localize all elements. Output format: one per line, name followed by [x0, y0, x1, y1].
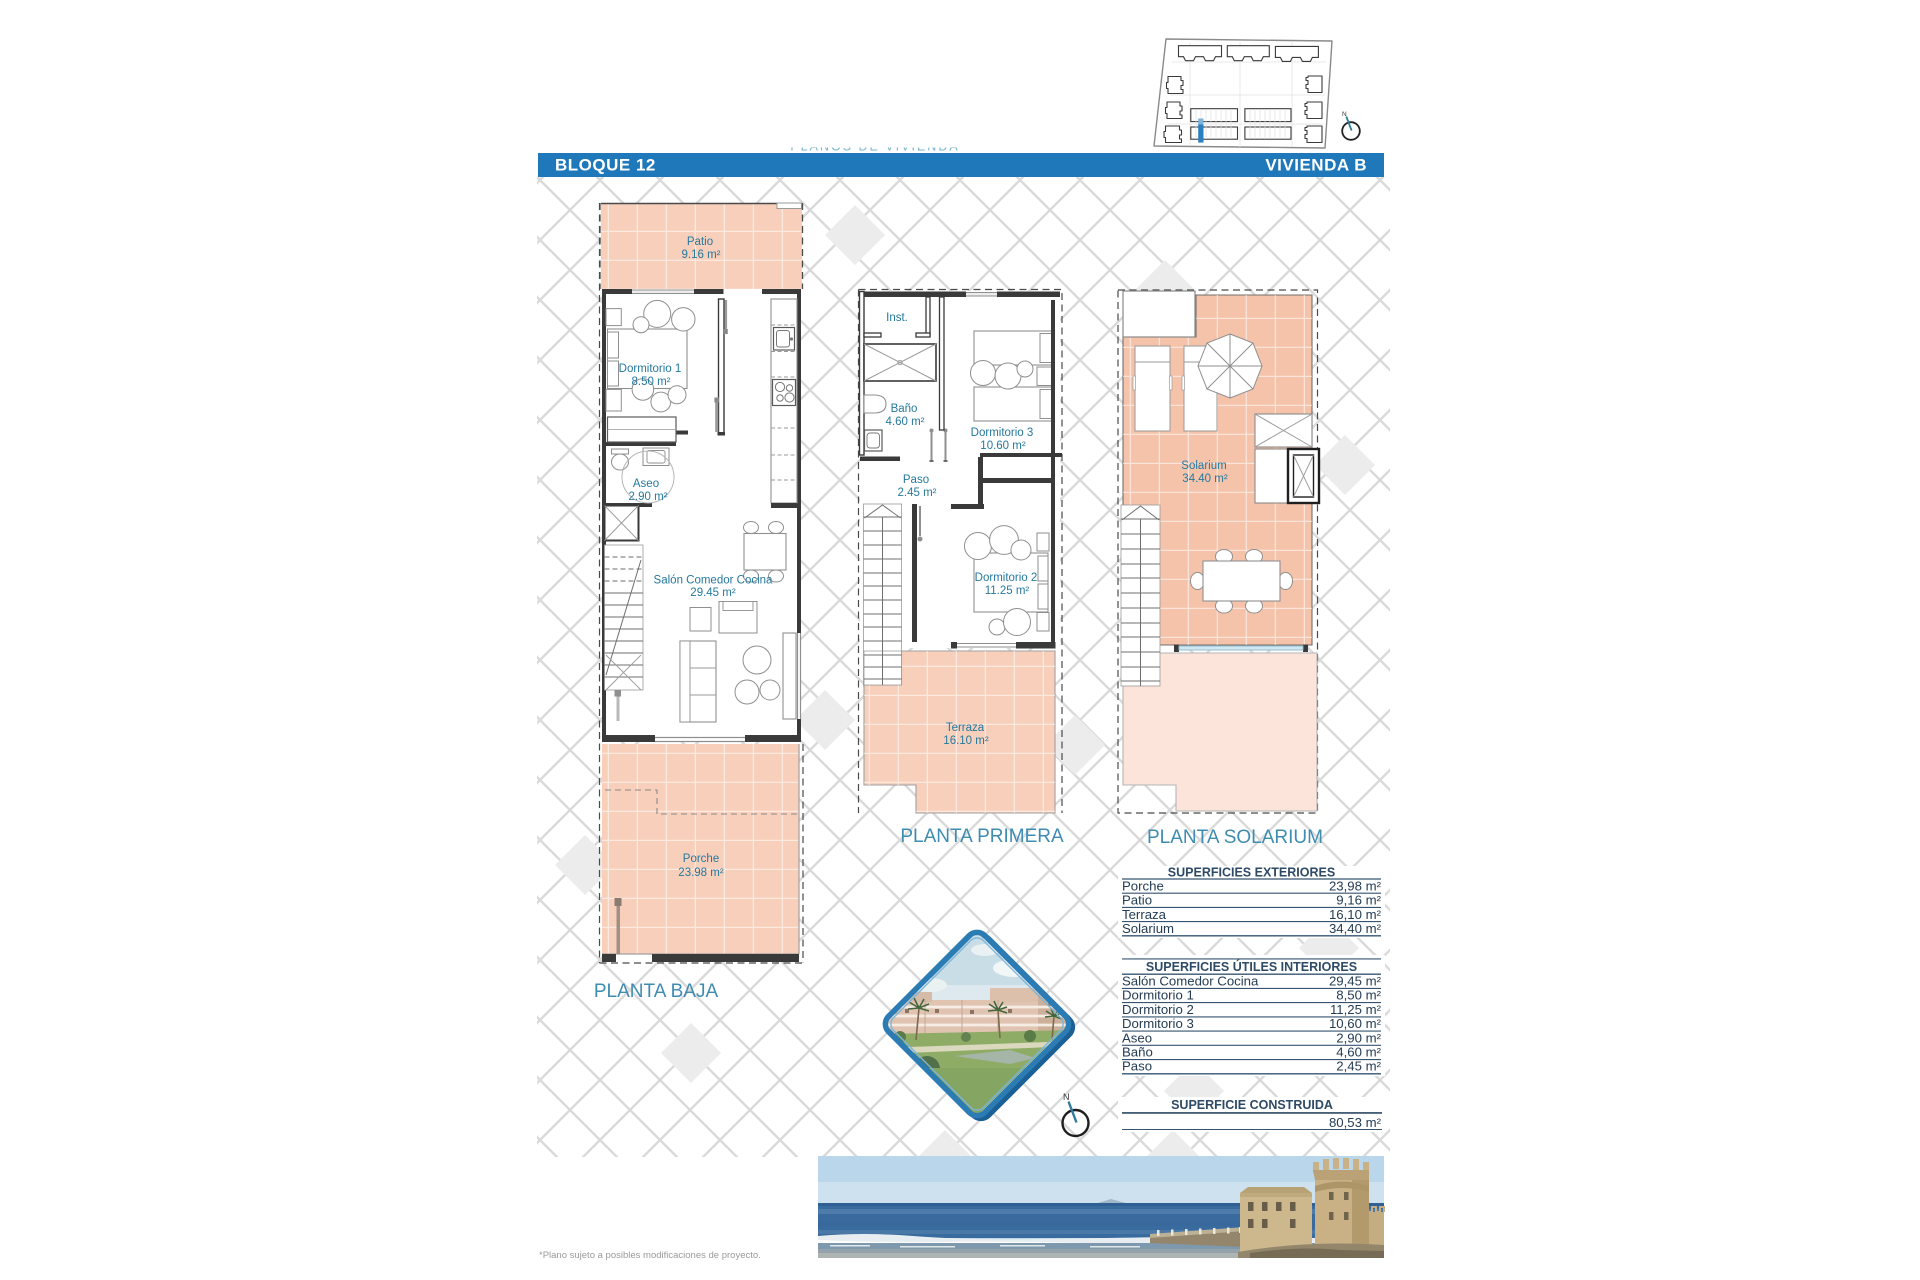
svg-text:Baño: Baño [1122, 1045, 1153, 1060]
svg-text:Dormitorio 1: Dormitorio 1 [619, 363, 682, 375]
svg-text:VIVIENDA B: VIVIENDA B [1265, 156, 1367, 175]
svg-text:SUPERFICIE CONSTRUIDA: SUPERFICIE CONSTRUIDA [1171, 1098, 1333, 1112]
svg-text:29.45 m²: 29.45 m² [690, 587, 736, 599]
svg-text:9,16 m²: 9,16 m² [1336, 893, 1381, 908]
svg-text:11,25 m²: 11,25 m² [1330, 1002, 1382, 1017]
svg-text:Paso: Paso [1122, 1059, 1152, 1074]
svg-text:23,98 m²: 23,98 m² [1329, 879, 1382, 894]
svg-text:9.16 m²: 9.16 m² [682, 249, 721, 261]
svg-text:*Plano sujeto a posibles modif: *Plano sujeto a posibles modificaciones … [539, 1250, 761, 1261]
svg-text:Solarium: Solarium [1181, 460, 1226, 472]
svg-text:Dormitorio 1: Dormitorio 1 [1122, 988, 1194, 1003]
svg-text:2.45 m²: 2.45 m² [898, 487, 937, 499]
svg-text:Dormitorio 2: Dormitorio 2 [975, 572, 1038, 584]
svg-text:8,50 m²: 8,50 m² [1336, 988, 1381, 1003]
svg-text:SUPERFICIES ÚTILES INTERIORES: SUPERFICIES ÚTILES INTERIORES [1146, 959, 1357, 974]
svg-text:BLOQUE 12: BLOQUE 12 [555, 156, 656, 175]
svg-text:Patio: Patio [687, 236, 713, 248]
svg-text:16.10 m²: 16.10 m² [943, 735, 989, 747]
svg-text:N: N [1342, 111, 1347, 118]
svg-text:4.60 m²: 4.60 m² [886, 416, 925, 428]
svg-text:Inst.: Inst. [886, 312, 908, 324]
svg-text:Dormitorio 3: Dormitorio 3 [1122, 1016, 1194, 1031]
svg-text:PLANTA PRIMERA: PLANTA PRIMERA [900, 826, 1064, 847]
svg-text:Porche: Porche [683, 853, 719, 865]
svg-text:PLANTA SOLARIUM: PLANTA SOLARIUM [1147, 827, 1323, 848]
svg-text:2.90 m²: 2.90 m² [629, 491, 668, 503]
svg-text:N: N [1063, 1092, 1070, 1102]
svg-text:Salón Comedor Cocina: Salón Comedor Cocina [1122, 973, 1259, 988]
svg-text:Solarium: Solarium [1122, 921, 1174, 936]
svg-text:11.25 m²: 11.25 m² [985, 585, 1030, 597]
svg-text:Salón Comedor Cocina: Salón Comedor Cocina [654, 575, 774, 587]
svg-text:2,45 m²: 2,45 m² [1336, 1059, 1381, 1074]
svg-text:29,45 m²: 29,45 m² [1329, 973, 1382, 988]
svg-text:Dormitorio 2: Dormitorio 2 [1122, 1002, 1194, 1017]
svg-text:10,60 m²: 10,60 m² [1329, 1016, 1382, 1031]
svg-text:2,90 m²: 2,90 m² [1336, 1030, 1381, 1045]
svg-text:80,53 m²: 80,53 m² [1329, 1115, 1382, 1130]
svg-text:8.50 m²: 8.50 m² [632, 376, 671, 388]
svg-text:Aseo: Aseo [633, 478, 659, 490]
svg-text:4,60 m²: 4,60 m² [1336, 1045, 1381, 1060]
svg-text:Terraza: Terraza [946, 722, 985, 734]
svg-text:Baño: Baño [891, 403, 918, 415]
svg-text:34.40 m²: 34.40 m² [1182, 473, 1228, 485]
svg-text:SUPERFICIES EXTERIORES: SUPERFICIES EXTERIORES [1168, 866, 1335, 880]
svg-text:Patio: Patio [1122, 893, 1152, 908]
svg-text:Porche: Porche [1122, 879, 1164, 894]
svg-text:Dormitorio 3: Dormitorio 3 [971, 427, 1034, 439]
svg-text:34,40 m²: 34,40 m² [1329, 921, 1382, 936]
svg-text:Terraza: Terraza [1122, 907, 1167, 922]
svg-text:23.98 m²: 23.98 m² [678, 867, 724, 879]
svg-text:PLANOS DE VIVIENDA: PLANOS DE VIVIENDA [790, 140, 959, 154]
svg-text:Aseo: Aseo [1122, 1030, 1152, 1045]
svg-text:10.60 m²: 10.60 m² [980, 440, 1026, 452]
svg-text:PLANTA BAJA: PLANTA BAJA [594, 981, 719, 1002]
svg-text:16,10 m²: 16,10 m² [1329, 907, 1382, 922]
svg-text:Paso: Paso [903, 474, 929, 486]
